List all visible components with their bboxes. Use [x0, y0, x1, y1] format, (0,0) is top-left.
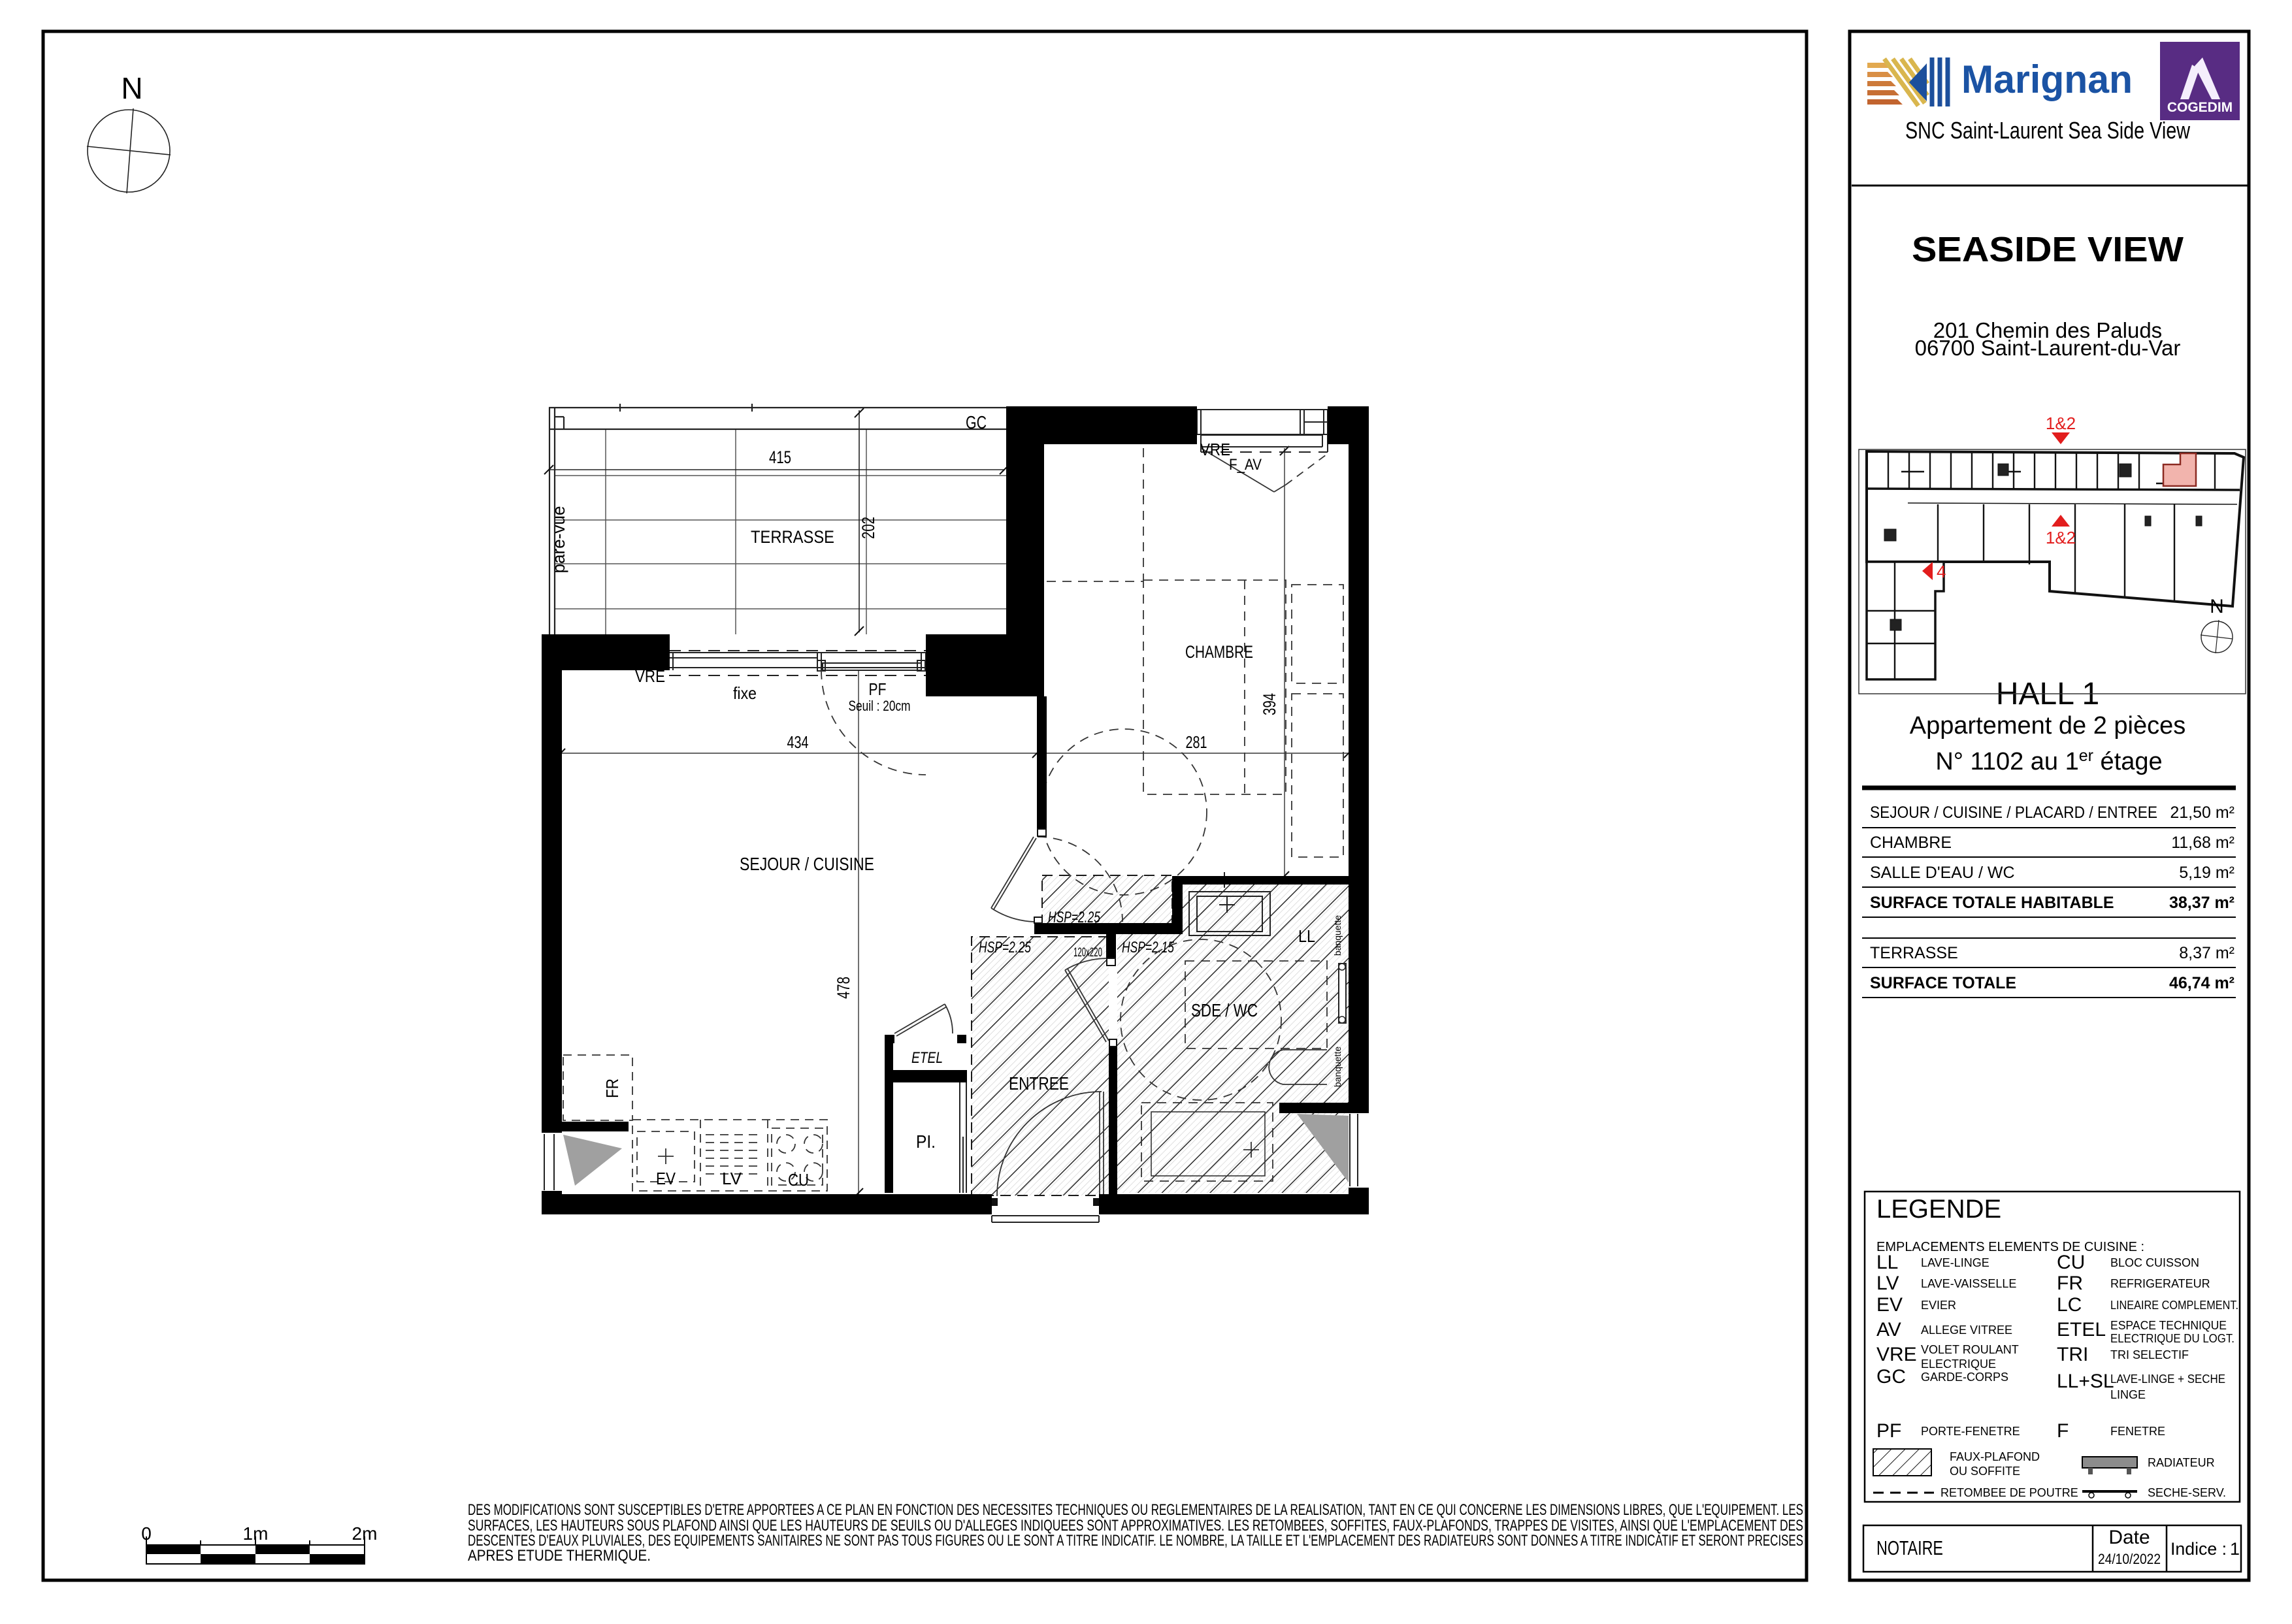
svg-text:LEGENDE: LEGENDE: [1876, 1195, 2001, 1224]
svg-text:202: 202: [859, 517, 878, 539]
svg-text:Seuil : 20cm: Seuil : 20cm: [849, 698, 911, 714]
svg-text:PF: PF: [869, 679, 887, 699]
svg-text:banquette: banquette: [1332, 1047, 1343, 1087]
svg-text:SEJOUR / CUISINE / PLACARD / E: SEJOUR / CUISINE / PLACARD / ENTREE: [1870, 804, 2157, 822]
svg-text:1&2: 1&2: [2046, 414, 2076, 433]
svg-text:EVIER: EVIER: [1921, 1299, 1956, 1312]
svg-text:415: 415: [769, 447, 791, 467]
svg-text:4: 4: [1937, 562, 1946, 581]
svg-text:46,74 m²: 46,74 m²: [2169, 974, 2235, 992]
svg-text:ELECTRIQUE DU LOGT.: ELECTRIQUE DU LOGT.: [2110, 1332, 2235, 1345]
svg-text:N° 1102 au 1er étage: N° 1102 au 1er étage: [1935, 747, 2162, 775]
svg-text:CHAMBRE: CHAMBRE: [1185, 642, 1253, 662]
svg-text:PF: PF: [1876, 1420, 1901, 1442]
svg-text:ETEL: ETEL: [2057, 1319, 2106, 1340]
svg-text:Marignan: Marignan: [1961, 57, 2133, 101]
svg-text:SDE / WC: SDE / WC: [1191, 1000, 1258, 1020]
svg-text:ALLEGE VITREE: ALLEGE VITREE: [1921, 1324, 2012, 1337]
svg-text:F_AV: F_AV: [1229, 456, 1262, 474]
svg-text:LAVE-VAISSELLE: LAVE-VAISSELLE: [1921, 1277, 2016, 1290]
svg-text:LC: LC: [2057, 1294, 2082, 1316]
svg-text:LL: LL: [1876, 1252, 1898, 1273]
svg-text:LV: LV: [1876, 1273, 1899, 1294]
svg-text:GC: GC: [1876, 1366, 1906, 1388]
svg-text:OU SOFFITE: OU SOFFITE: [1950, 1465, 2020, 1478]
svg-text:FENETRE: FENETRE: [2110, 1425, 2165, 1438]
svg-text:SNC Saint-Laurent Sea Side Vie: SNC Saint-Laurent Sea Side View: [1905, 117, 2191, 144]
svg-text:LAVE-LINGE + SECHE: LAVE-LINGE + SECHE: [2110, 1372, 2225, 1386]
svg-text:ENTREE: ENTREE: [1009, 1073, 1069, 1094]
svg-text:RADIATEUR: RADIATEUR: [2148, 1456, 2215, 1469]
svg-text:0: 0: [141, 1523, 152, 1544]
svg-text:VRE: VRE: [1876, 1344, 1917, 1365]
svg-text:PI.: PI.: [916, 1131, 936, 1152]
svg-text:HSP=2.25: HSP=2.25: [979, 939, 1031, 956]
svg-text:FAUX-PLAFOND: FAUX-PLAFOND: [1950, 1450, 2040, 1463]
svg-text:VRE: VRE: [1200, 440, 1230, 459]
svg-text:Appartement de 2 pièces: Appartement de 2 pièces: [1910, 712, 2186, 739]
svg-text:EV: EV: [1876, 1294, 1903, 1316]
svg-text:LL: LL: [1298, 926, 1315, 946]
svg-text:TRI SELECTIF: TRI SELECTIF: [2110, 1348, 2189, 1361]
svg-text:AV: AV: [1876, 1319, 1901, 1340]
svg-text:HSP=2.15: HSP=2.15: [1122, 939, 1174, 956]
svg-text:VOLET ROULANT: VOLET ROULANT: [1921, 1343, 2019, 1356]
svg-text:TERRASSE: TERRASSE: [1870, 944, 1958, 962]
svg-text:TRI: TRI: [2057, 1344, 2088, 1365]
svg-text:PORTE-FENETRE: PORTE-FENETRE: [1921, 1425, 2020, 1438]
svg-text:FR: FR: [2057, 1273, 2083, 1294]
svg-text:DES MODIFICATIONS SONT SUSCEPT: DES MODIFICATIONS SONT SUSCEPTIBLES D'ET…: [468, 1501, 1803, 1519]
svg-text:RETOMBEE DE POUTRE: RETOMBEE DE POUTRE: [1940, 1486, 2078, 1499]
svg-text:1&2: 1&2: [2046, 528, 2076, 547]
svg-text:CU: CU: [2057, 1252, 2085, 1273]
svg-text:N: N: [2210, 596, 2224, 617]
svg-text:CU: CU: [788, 1170, 809, 1190]
svg-text:SEASIDE VIEW: SEASIDE VIEW: [1912, 230, 2184, 269]
svg-text:banquette: banquette: [1332, 915, 1343, 956]
svg-text:F: F: [2057, 1420, 2069, 1442]
svg-text:120x220: 120x220: [1073, 946, 1102, 960]
svg-text:APRES ETUDE THERMIQUE.: APRES ETUDE THERMIQUE.: [468, 1547, 651, 1565]
svg-text:434: 434: [787, 732, 809, 752]
svg-text:394: 394: [1260, 693, 1279, 715]
svg-text:SURFACE TOTALE HABITABLE: SURFACE TOTALE HABITABLE: [1870, 894, 2114, 912]
svg-text:GC: GC: [966, 412, 987, 432]
svg-text:5,19 m²: 5,19 m²: [2179, 864, 2235, 882]
svg-text:ETEL: ETEL: [911, 1049, 943, 1067]
svg-text:FR: FR: [602, 1079, 622, 1098]
svg-text:1m: 1m: [243, 1523, 269, 1544]
svg-text:11,68 m²: 11,68 m²: [2171, 834, 2235, 852]
svg-text:Date: Date: [2108, 1527, 2150, 1548]
svg-text:N: N: [121, 71, 142, 105]
svg-text:fixe: fixe: [733, 683, 757, 703]
svg-text:8,37 m²: 8,37 m²: [2179, 944, 2235, 962]
svg-text:REFRIGERATEUR: REFRIGERATEUR: [2110, 1277, 2210, 1290]
svg-text:1: 1: [2230, 1539, 2240, 1559]
svg-text:EV: EV: [656, 1169, 676, 1188]
svg-text:DESCENTES D'EAUX PLUVIALES, DE: DESCENTES D'EAUX PLUVIALES, DES EQUIPEME…: [468, 1532, 1803, 1550]
svg-text:21,50 m²: 21,50 m²: [2170, 804, 2235, 822]
svg-text:478: 478: [834, 977, 853, 999]
svg-text:LINEAIRE COMPLEMENT.: LINEAIRE COMPLEMENT.: [2110, 1299, 2238, 1312]
svg-text:COGEDIM: COGEDIM: [2167, 100, 2233, 115]
svg-text:TERRASSE: TERRASSE: [751, 527, 834, 547]
svg-text:CHAMBRE: CHAMBRE: [1870, 834, 1952, 852]
svg-text:2m: 2m: [352, 1523, 378, 1544]
svg-text:NOTAIRE: NOTAIRE: [1876, 1536, 1943, 1559]
svg-text:BLOC CUISSON: BLOC CUISSON: [2110, 1256, 2199, 1269]
svg-text:SALLE D'EAU / WC: SALLE D'EAU / WC: [1870, 864, 2015, 882]
svg-text:LV: LV: [722, 1169, 742, 1188]
svg-text:LINGE: LINGE: [2110, 1388, 2146, 1401]
svg-text:LL+SL: LL+SL: [2057, 1371, 2114, 1392]
svg-text:SECHE-SERV.: SECHE-SERV.: [2148, 1486, 2226, 1499]
svg-text:ELECTRIQUE: ELECTRIQUE: [1921, 1357, 1996, 1371]
svg-text:GARDE-CORPS: GARDE-CORPS: [1921, 1371, 2008, 1384]
svg-text:38,37 m²: 38,37 m²: [2169, 894, 2235, 912]
svg-text:EMPLACEMENTS ELEMENTS DE CUISI: EMPLACEMENTS ELEMENTS DE CUISINE :: [1876, 1240, 2144, 1254]
svg-text:06700 Saint-Laurent-du-Var: 06700 Saint-Laurent-du-Var: [1915, 336, 2181, 360]
svg-text:ESPACE TECHNIQUE: ESPACE TECHNIQUE: [2110, 1319, 2227, 1332]
svg-text:LAVE-LINGE: LAVE-LINGE: [1921, 1256, 1989, 1269]
svg-text:24/10/2022: 24/10/2022: [2098, 1551, 2161, 1567]
svg-text:281: 281: [1186, 732, 1207, 752]
svg-text:SURFACE TOTALE: SURFACE TOTALE: [1870, 974, 2016, 992]
svg-text:Indice :: Indice :: [2170, 1539, 2227, 1559]
svg-text:pare-vue: pare-vue: [549, 506, 568, 574]
svg-text:SEJOUR / CUISINE: SEJOUR / CUISINE: [740, 854, 874, 874]
